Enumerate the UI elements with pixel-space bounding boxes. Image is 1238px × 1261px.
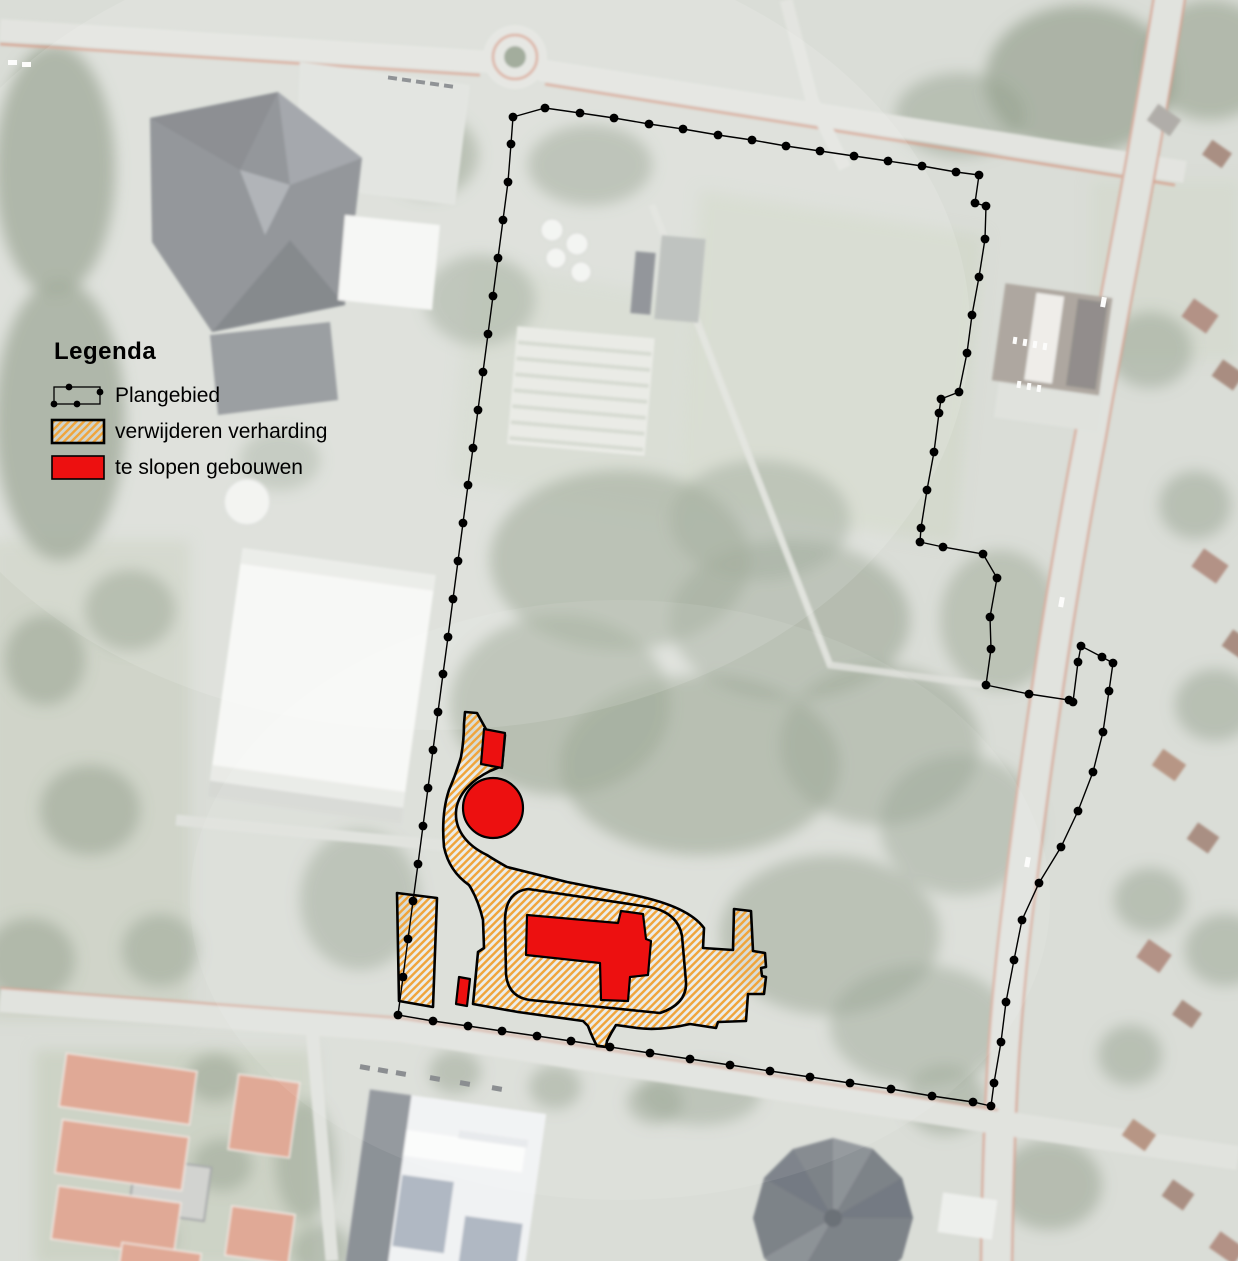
- slopen-swatch-icon: [50, 454, 106, 481]
- demolition-small-building-1: [481, 729, 505, 768]
- verharding-strip-area: [397, 893, 437, 1007]
- demolition-circle-building: [463, 778, 523, 838]
- verharding-swatch-icon: [50, 418, 106, 445]
- legend-title: Legenda: [54, 338, 327, 366]
- legend-item-plangebied: Plangebied: [50, 382, 327, 409]
- plangebied-swatch-icon: [50, 382, 106, 409]
- demolition-small-building-2: [456, 977, 470, 1006]
- plan-overlay: [0, 0, 1238, 1261]
- legend-item-slopen: te slopen gebouwen: [50, 454, 327, 481]
- legend-label-verharding: verwijderen verharding: [115, 420, 327, 444]
- legend-item-verharding: verwijderen verharding: [50, 418, 327, 445]
- legend-label-plangebied: Plangebied: [115, 384, 220, 408]
- verharding-areas: [397, 712, 766, 1047]
- legend: Legenda Plangebied verwijderen verhardin…: [50, 338, 327, 490]
- map-figure: Legenda Plangebied verwijderen verhardin…: [0, 0, 1238, 1261]
- legend-label-slopen: te slopen gebouwen: [115, 456, 303, 480]
